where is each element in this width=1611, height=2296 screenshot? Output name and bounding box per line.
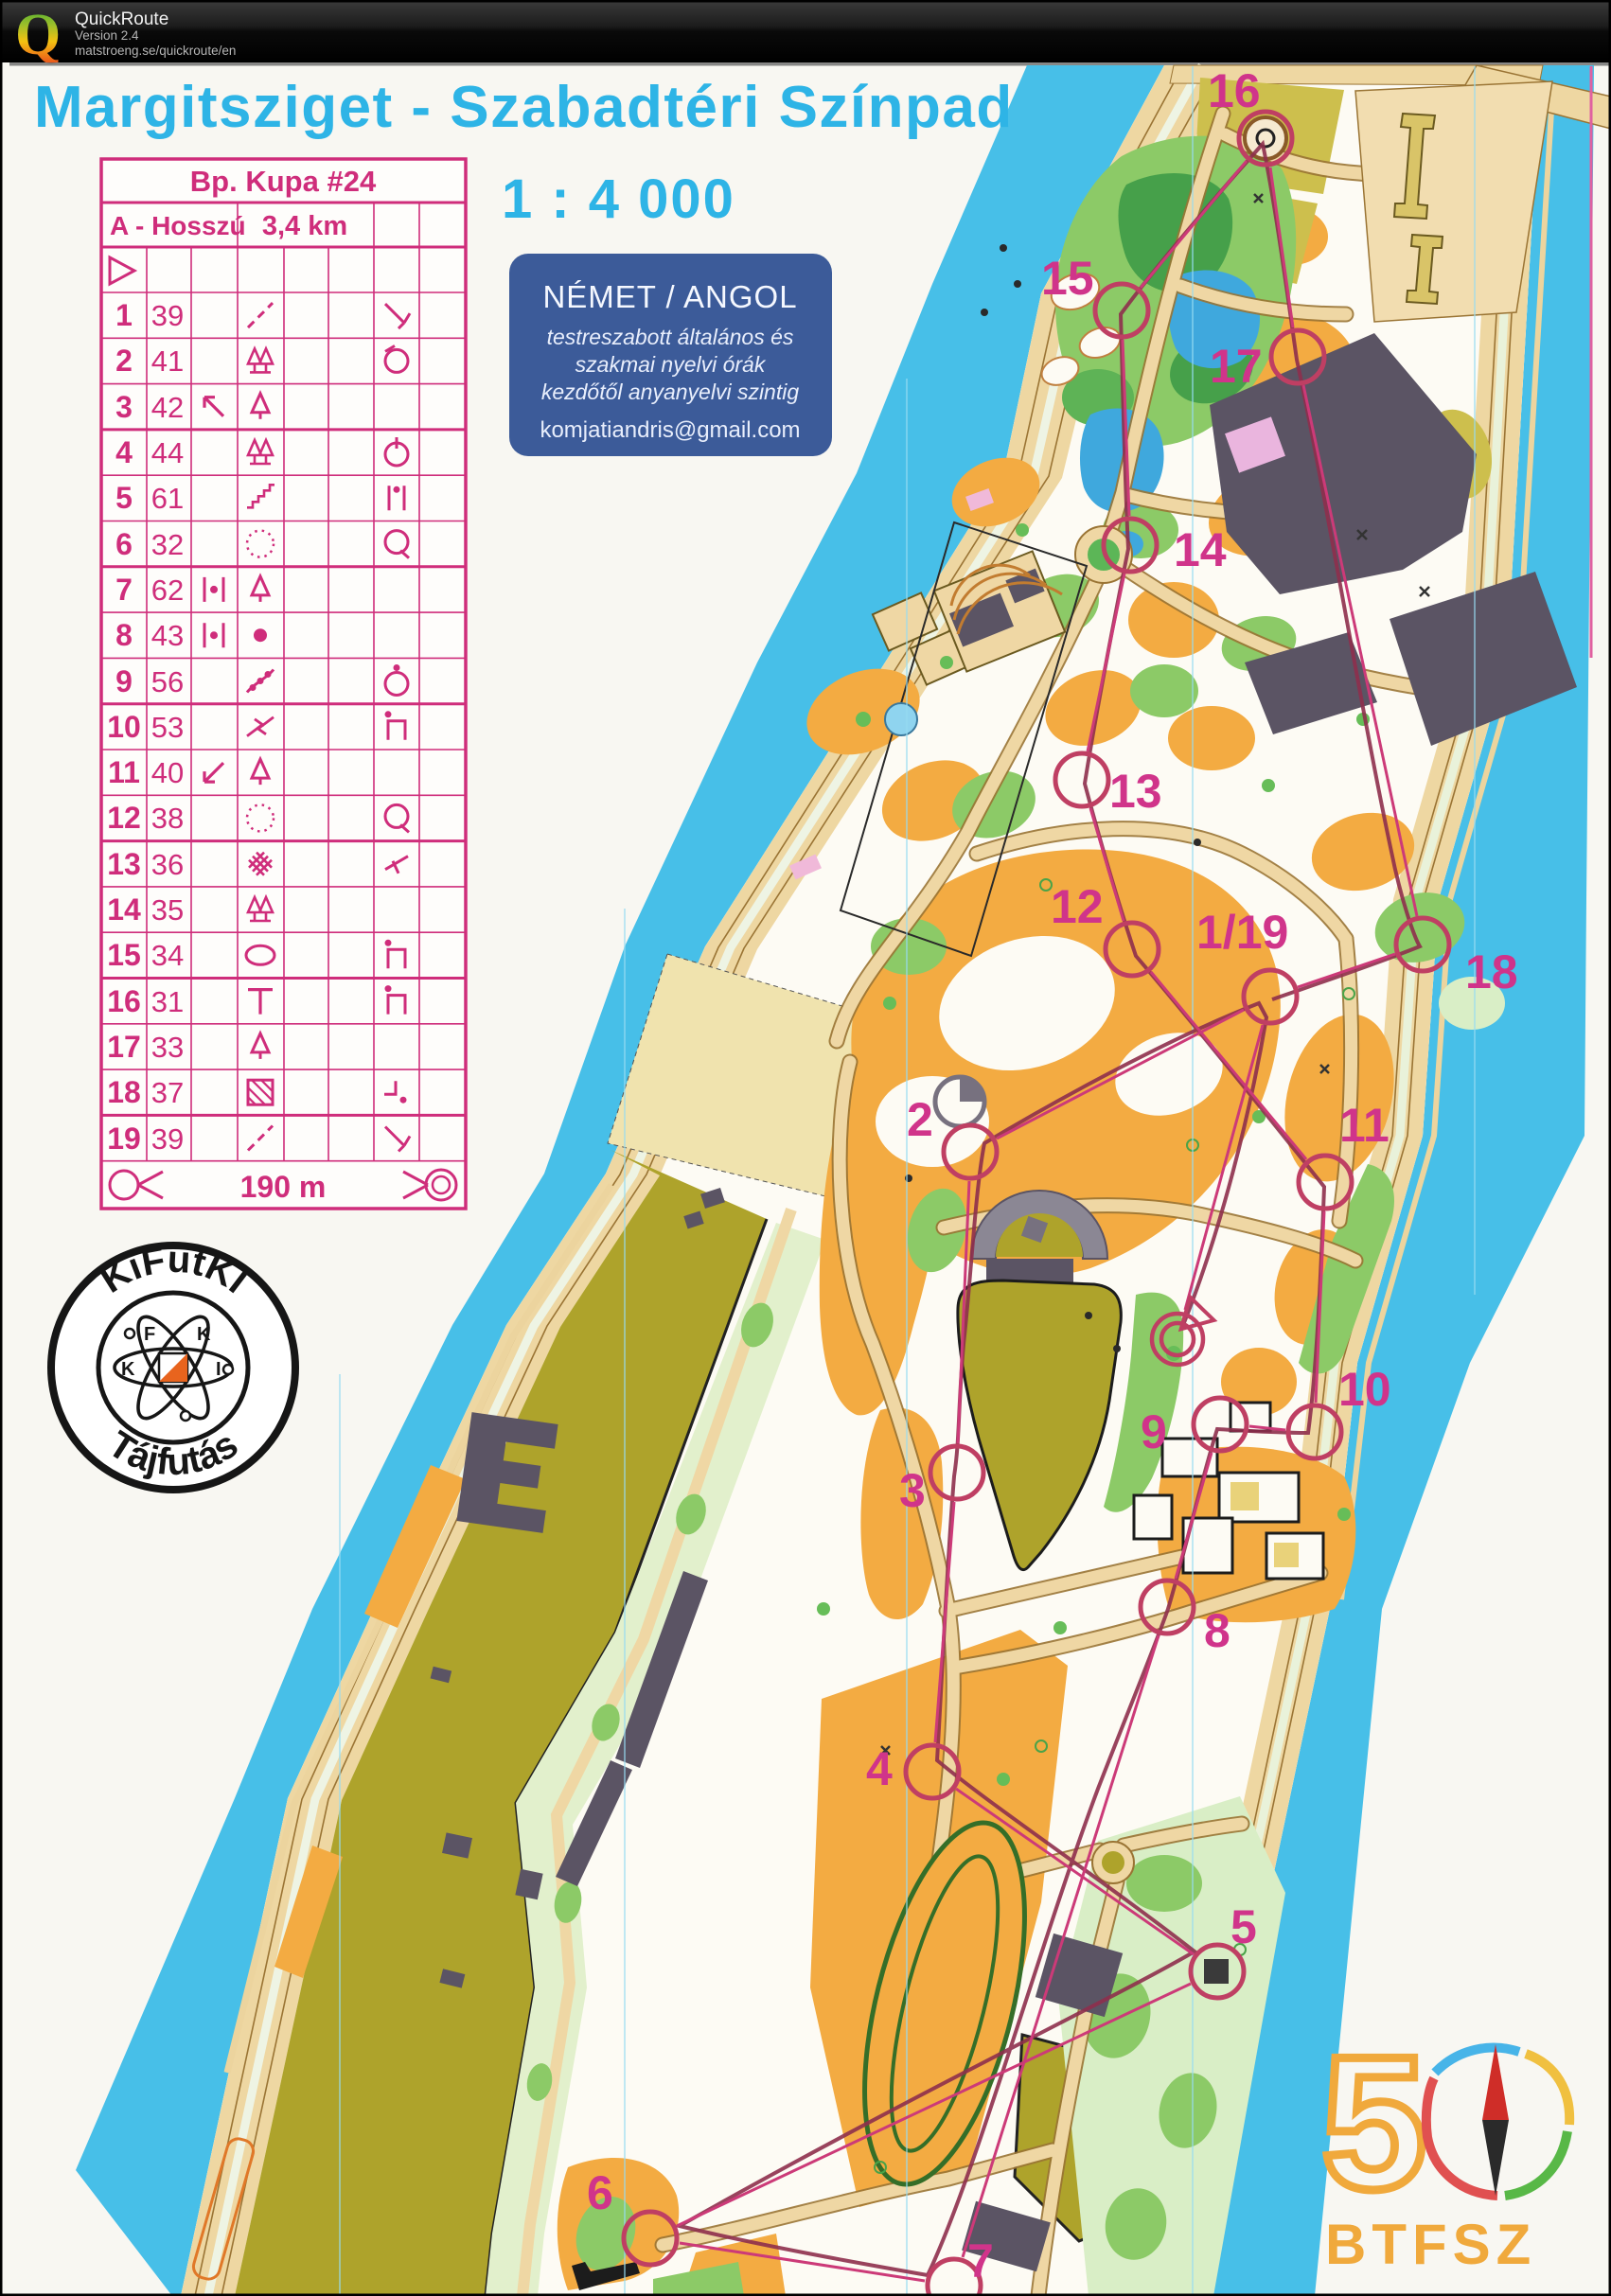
svg-text:8: 8 <box>115 618 133 652</box>
svg-text:kezdőtől anyanyelvi szintig: kezdőtől anyanyelvi szintig <box>541 380 800 404</box>
svg-text:1 : 4 000: 1 : 4 000 <box>502 168 735 230</box>
svg-text:5: 5 <box>1230 1900 1257 1953</box>
svg-text:13: 13 <box>1109 765 1162 818</box>
svg-text:16: 16 <box>107 984 141 1018</box>
svg-text:A - Hosszú: A - Hosszú <box>110 211 246 240</box>
svg-text:18: 18 <box>107 1075 141 1109</box>
svg-text:NÉMET / ANGOL: NÉMET / ANGOL <box>542 279 797 314</box>
svg-text:3: 3 <box>899 1464 926 1517</box>
svg-text:53: 53 <box>151 711 184 744</box>
svg-text:5: 5 <box>115 481 133 515</box>
svg-text:61: 61 <box>151 482 184 515</box>
svg-text:Version 2.4: Version 2.4 <box>75 28 139 43</box>
svg-text:190 m: 190 m <box>240 1170 327 1204</box>
svg-text:QuickRoute: QuickRoute <box>75 9 168 29</box>
svg-text:3,4 km: 3,4 km <box>262 211 347 241</box>
svg-text:42: 42 <box>151 391 184 424</box>
svg-text:I: I <box>216 1359 221 1380</box>
svg-text:40: 40 <box>151 756 184 789</box>
svg-text:4: 4 <box>866 1742 893 1795</box>
svg-text:9: 9 <box>1141 1405 1167 1458</box>
svg-text:14: 14 <box>1174 523 1227 576</box>
svg-text:4: 4 <box>115 435 133 469</box>
svg-text:5: 5 <box>1321 2018 1426 2229</box>
svg-text:37: 37 <box>151 1076 184 1109</box>
svg-text:7: 7 <box>115 573 133 607</box>
svg-text:33: 33 <box>151 1031 184 1064</box>
svg-text:15: 15 <box>107 938 141 972</box>
svg-text:12: 12 <box>1051 880 1104 933</box>
svg-text:15: 15 <box>1041 252 1094 305</box>
svg-text:44: 44 <box>151 436 184 469</box>
svg-text:11: 11 <box>1339 1099 1390 1152</box>
svg-text:testreszabott általános és: testreszabott általános és <box>547 325 794 349</box>
svg-text:K: K <box>121 1359 135 1380</box>
svg-text:8: 8 <box>1204 1604 1230 1657</box>
svg-text:39: 39 <box>151 1122 184 1156</box>
svg-text:2: 2 <box>115 344 133 378</box>
svg-text:K: K <box>197 1324 211 1345</box>
svg-text:Bp. Kupa #24: Bp. Kupa #24 <box>190 165 377 198</box>
svg-text:38: 38 <box>151 802 184 835</box>
svg-text:BTFSZ: BTFSZ <box>1325 2213 1536 2276</box>
svg-text:matstroeng.se/quickroute/en: matstroeng.se/quickroute/en <box>75 44 236 58</box>
svg-text:1/19: 1/19 <box>1196 906 1288 959</box>
svg-text:35: 35 <box>151 893 184 927</box>
svg-text:szakmai nyelvi órák: szakmai nyelvi órák <box>575 352 767 377</box>
svg-text:18: 18 <box>1465 945 1518 998</box>
svg-text:Q: Q <box>15 3 61 67</box>
svg-text:12: 12 <box>107 801 141 835</box>
svg-text:32: 32 <box>151 528 184 561</box>
svg-text:10: 10 <box>1338 1363 1391 1416</box>
svg-text:9: 9 <box>115 664 133 698</box>
svg-text:19: 19 <box>107 1122 141 1156</box>
svg-text:56: 56 <box>151 665 184 698</box>
svg-text:16: 16 <box>1208 64 1261 117</box>
svg-text:31: 31 <box>151 985 184 1018</box>
svg-text:41: 41 <box>151 344 184 378</box>
svg-text:13: 13 <box>107 847 141 881</box>
svg-text:3: 3 <box>115 390 133 424</box>
svg-text:43: 43 <box>151 619 184 652</box>
svg-text:komjatiandris@gmail.com: komjatiandris@gmail.com <box>540 417 800 443</box>
svg-text:1: 1 <box>115 298 133 332</box>
svg-text:6: 6 <box>587 2166 613 2219</box>
svg-text:Margitsziget - Szabadtéri Szín: Margitsziget - Szabadtéri Színpad <box>34 75 1014 140</box>
svg-text:34: 34 <box>151 939 184 972</box>
svg-text:6: 6 <box>115 527 133 561</box>
svg-text:F: F <box>144 1324 155 1345</box>
svg-text:17: 17 <box>1210 340 1263 393</box>
svg-text:10: 10 <box>107 710 141 744</box>
svg-text:2: 2 <box>907 1093 933 1146</box>
svg-text:14: 14 <box>107 892 141 927</box>
svg-text:11: 11 <box>108 755 140 789</box>
svg-text:36: 36 <box>151 848 184 881</box>
svg-text:39: 39 <box>151 299 184 332</box>
svg-text:17: 17 <box>107 1030 141 1064</box>
svg-text:62: 62 <box>151 574 184 607</box>
svg-text:7: 7 <box>967 2234 994 2287</box>
